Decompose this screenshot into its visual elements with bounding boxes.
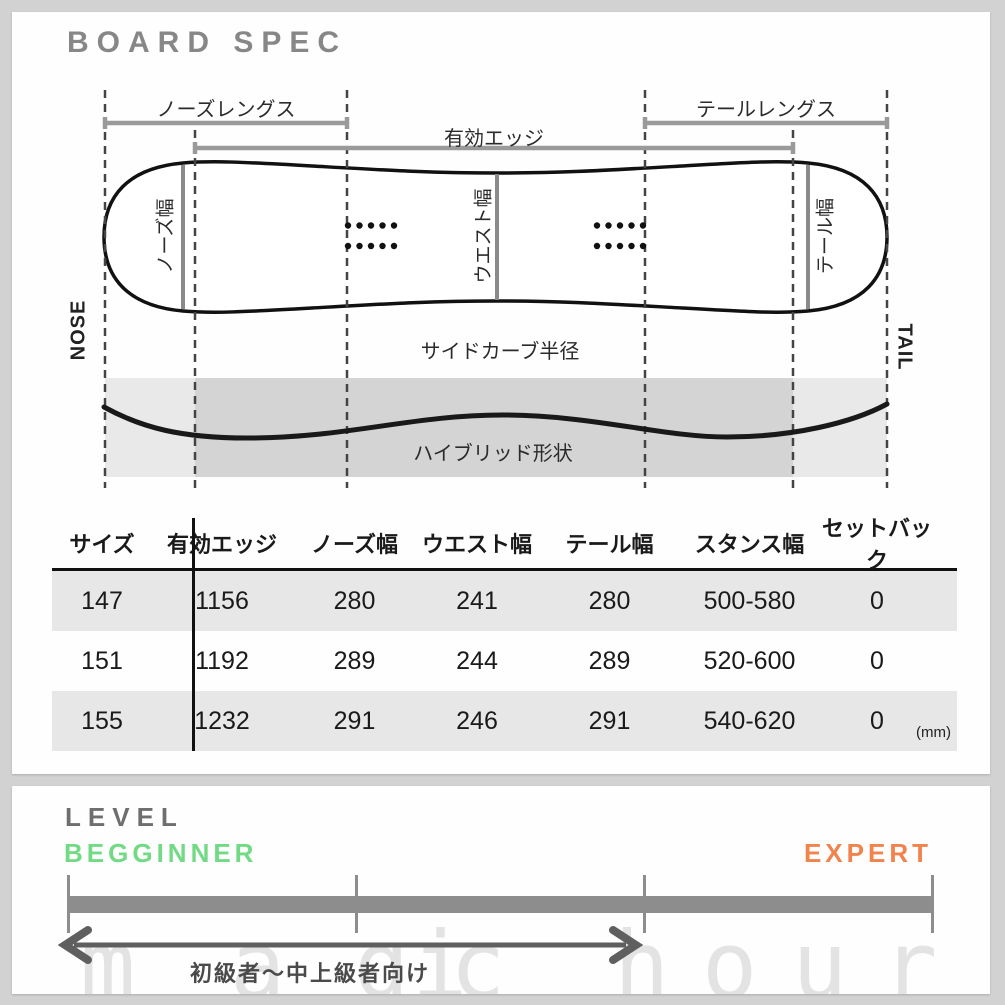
table-cell: 520-600: [682, 647, 817, 676]
effective-edge-label: 有効エッジ: [444, 122, 544, 151]
level-range-arrow: [12, 786, 990, 994]
profile-shape-label: ハイブリッド形状: [413, 437, 573, 466]
table-row: 147 1156 280 241 280 500-580 0: [52, 571, 957, 631]
table-cell: 280: [292, 587, 417, 616]
board-spec-card: BOARD SPEC: [12, 12, 990, 774]
tail-width-label: テール幅: [811, 198, 838, 274]
tail-end-label: TAIL: [893, 324, 916, 371]
table-cell: 289: [537, 647, 682, 676]
column-header: ノーズ幅: [292, 527, 417, 559]
column-header: スタンス幅: [682, 527, 817, 559]
table-row: 151 1192 289 244 289 520-600 0: [52, 631, 957, 691]
table-cell: 280: [537, 587, 682, 616]
size-value: 151: [52, 647, 152, 676]
nose-length-label: ノーズレングス: [157, 93, 296, 122]
column-header: 有効エッジ: [152, 527, 292, 559]
table-cell: 241: [417, 587, 537, 616]
column-header: サイズ: [52, 527, 152, 559]
unit-note: (mm): [916, 724, 951, 741]
table-cell: 0: [817, 587, 937, 616]
size-value: 155: [52, 707, 152, 736]
sidecut-radius-label: サイドカーブ半径: [421, 335, 580, 364]
table-column-divider: [192, 518, 195, 751]
spec-table-header-row: サイズ 有効エッジ ノーズ幅 ウエスト幅 テール幅 スタンス幅 セットバック: [52, 518, 957, 571]
tail-length-label: テールレングス: [696, 93, 836, 122]
table-cell: 244: [417, 647, 537, 676]
table-cell: 540-620: [682, 707, 817, 736]
table-cell: 1192: [152, 647, 292, 676]
nose-width-label: ノーズ幅: [151, 198, 178, 273]
nose-end-label: NOSE: [68, 300, 91, 361]
column-header: テール幅: [537, 527, 682, 559]
table-row: 155 1232 291 246 291 540-620 0: [52, 691, 957, 751]
table-cell: 291: [292, 707, 417, 736]
table-cell: 291: [537, 707, 682, 736]
column-header: セットバック: [817, 511, 937, 575]
column-header: ウエスト幅: [417, 527, 537, 559]
waist-width-label: ウエスト幅: [469, 188, 496, 283]
table-cell: 246: [417, 707, 537, 736]
table-cell: 1232: [152, 707, 292, 736]
table-cell: 0: [817, 647, 937, 676]
page-background: BOARD SPEC: [0, 0, 1005, 1005]
table-cell: 1156: [152, 587, 292, 616]
spec-table: サイズ 有効エッジ ノーズ幅 ウエスト幅 テール幅 スタンス幅 セットバック 1…: [52, 518, 957, 751]
table-cell: 500-580: [682, 587, 817, 616]
size-value: 147: [52, 587, 152, 616]
level-card: m a g i c h o u r LEVEL BEGGINNER EXPERT…: [12, 786, 990, 994]
level-range-label: 初級者～中上級者向け: [160, 956, 460, 988]
table-cell: 289: [292, 647, 417, 676]
